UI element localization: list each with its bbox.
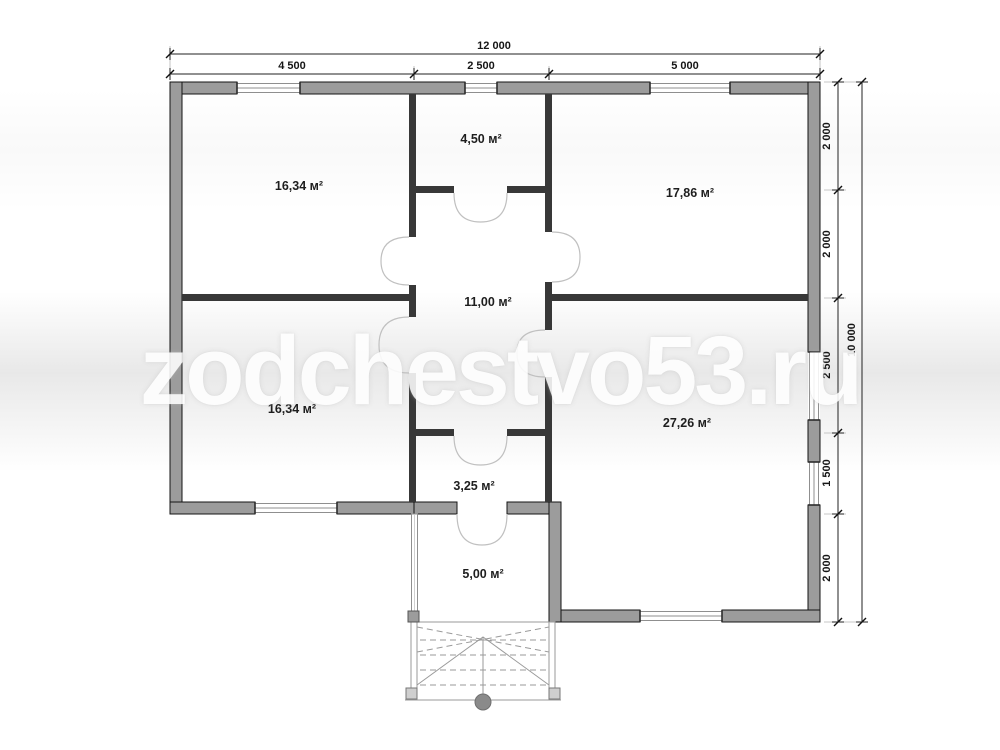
dim-label-segment: 2 000 xyxy=(821,230,833,258)
window xyxy=(237,82,300,94)
room-area-label: 3,25 м² xyxy=(453,479,494,493)
dim-label-segment: 2 000 xyxy=(821,554,833,582)
dimension-top: 12 000 4 500 2 500 5 000 xyxy=(166,40,824,80)
room-area-label: 11,00 м² xyxy=(464,295,511,309)
floor-plan-drawing: 12 000 4 500 2 500 5 000 xyxy=(0,0,1000,750)
room-area-label: 16,34 м² xyxy=(275,179,323,193)
window xyxy=(808,462,820,505)
exterior-walls xyxy=(170,82,820,622)
porch-column xyxy=(475,694,491,710)
window xyxy=(255,502,337,514)
door-arc xyxy=(454,193,507,222)
porch-steps xyxy=(405,611,561,710)
room-area-label: 17,86 м² xyxy=(666,186,714,200)
door-arc xyxy=(517,330,545,377)
door-arc xyxy=(379,317,409,373)
dim-label-segment: 2 000 xyxy=(821,122,833,150)
dim-label-segment: 2 500 xyxy=(821,351,833,379)
porch-post xyxy=(406,688,417,699)
dim-label-total-height: 10 000 xyxy=(846,323,858,357)
room-area-label: 16,34 м² xyxy=(268,402,316,416)
window xyxy=(808,352,820,420)
vestibule-thin-wall xyxy=(412,514,418,622)
dim-label-segment: 4 500 xyxy=(278,60,306,72)
door-arc xyxy=(552,232,580,282)
room-area-label: 27,26 м² xyxy=(663,416,711,430)
room-area-label: 5,00 м² xyxy=(462,567,503,581)
floor-plan-page: 12 000 4 500 2 500 5 000 xyxy=(0,0,1000,750)
door-arc xyxy=(381,237,409,285)
door-arc xyxy=(457,514,507,545)
porch-post xyxy=(408,611,419,622)
window xyxy=(650,82,730,94)
room-area-label: 4,50 м² xyxy=(460,132,501,146)
dim-label-segment: 2 500 xyxy=(467,60,495,72)
windows xyxy=(237,82,820,622)
dim-label-segment: 1 500 xyxy=(821,459,833,487)
dim-label-segment: 5 000 xyxy=(671,60,699,72)
dimension-right: 2 000 2 000 2 500 1 500 2 000 10 000 xyxy=(821,78,868,626)
window xyxy=(465,82,497,94)
window xyxy=(640,610,722,622)
door-arc xyxy=(454,436,507,465)
dim-label-total-width: 12 000 xyxy=(477,40,511,52)
porch-post xyxy=(549,688,560,699)
